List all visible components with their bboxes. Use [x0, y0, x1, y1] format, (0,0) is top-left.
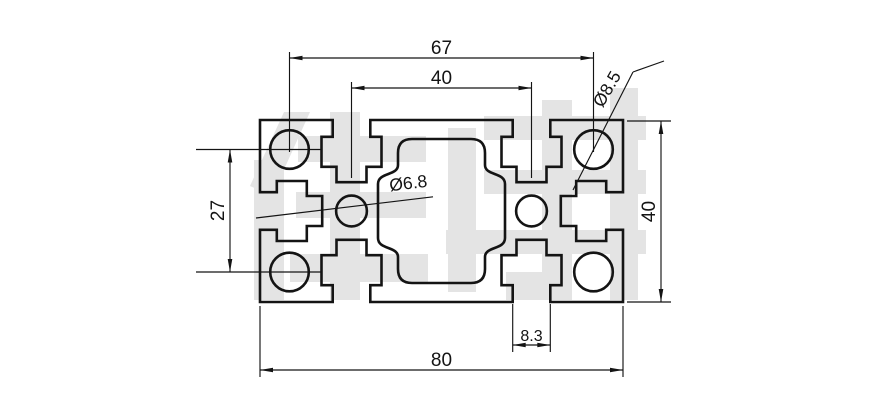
technical-drawing-page: 67 40 Ø8.5 27 Ø6.8	[0, 0, 880, 420]
leader-landing	[633, 61, 664, 72]
dim-slot-width: 8.3	[513, 304, 551, 352]
arrowhead	[352, 86, 365, 91]
dim-label: 80	[431, 350, 452, 371]
arrowhead	[659, 289, 664, 302]
dim-label: 40	[431, 68, 452, 89]
dim-bottom-width: 80	[260, 306, 623, 377]
arrowhead	[659, 121, 664, 134]
arrowhead	[610, 368, 623, 373]
arrowhead	[228, 259, 233, 272]
corner-hole-bottom-right	[574, 253, 613, 292]
profile-drawing: 67 40 Ø8.5 27 Ø6.8	[0, 0, 880, 420]
dim-label: 40	[639, 201, 660, 222]
arrowhead	[260, 368, 273, 373]
dim-label: 8.3	[520, 328, 542, 345]
arrowhead	[228, 150, 233, 163]
dim-label: 27	[208, 200, 229, 221]
dim-label: 67	[431, 38, 452, 59]
arrowhead	[581, 56, 594, 61]
dim-label: Ø6.8	[388, 171, 428, 195]
arrowhead	[290, 56, 303, 61]
arrowhead	[519, 86, 532, 91]
